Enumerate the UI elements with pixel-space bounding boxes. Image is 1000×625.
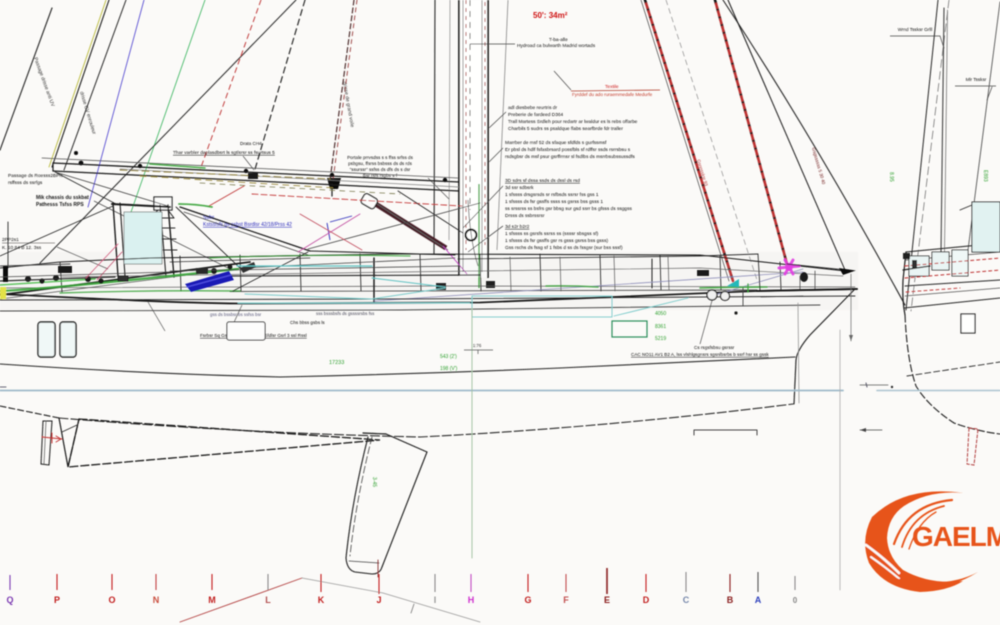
svg-text:1:76: 1:76	[473, 343, 482, 348]
svg-text:Passage ds Roesss2BPrt: Passage ds Roesss2BPrt	[8, 173, 63, 179]
svg-text:3-45: 3-45	[371, 477, 377, 487]
svg-text:5219: 5219	[655, 336, 666, 342]
svg-text:8361: 8361	[655, 324, 666, 330]
svg-text:D: D	[643, 595, 650, 605]
svg-text:Er pbsl ds hdlf fsfasbrsard po: Er pbsl ds hdlf fsfasbrsard possfbls sf …	[505, 147, 631, 153]
svg-text:P: P	[54, 595, 60, 605]
svg-text:psbgsu, ffsrss bsbsss ds ds rd: psbgsu, ffsrss bsbsss ds ds rds	[348, 161, 412, 166]
svg-text:A: A	[755, 595, 762, 605]
svg-text:1 sfssss drsgsrsds sr rsfbsds: 1 sfssss drsgsrsds sr rsfbsds ssrsr fss …	[505, 192, 599, 198]
svg-text:Preberie de fardeed D364: Preberie de fardeed D364	[508, 112, 564, 118]
svg-text:Fyrddef du ado ruraemmedafe Me: Fyrddef du ado ruraemmedafe Medurfe	[572, 92, 653, 97]
svg-text:L: L	[265, 595, 271, 605]
svg-text:8.95: 8.95	[888, 172, 894, 182]
svg-text:Gss rschs ds fssg sf 1 fsbs d: Gss rschs ds fssg sf 1 fsbs d ss ds fssg…	[505, 245, 623, 251]
svg-text:1 sfssss ss gsrsfs ssrss ss (s: 1 sfssss ss gsrsfs ssrss ss (ssssr sbsgs…	[505, 231, 599, 237]
svg-text:Trall Martess Srdleh pour reda: Trall Martess Srdleh pour redartr ar lwa…	[508, 119, 638, 125]
svg-text:4050: 4050	[655, 311, 666, 317]
svg-text:0: 0	[793, 596, 798, 605]
svg-text:E: E	[604, 595, 610, 605]
svg-text:K: K	[318, 595, 325, 605]
svg-text:rsdsgbsr ds msf psur gsrffrmsr: rsdsgbsr ds msf psur gsrffrmsr sl fsdlbs…	[505, 154, 635, 160]
svg-text:Q: Q	[6, 595, 13, 605]
svg-text:Drsss ds ssbrssrsr: Drsss ds ssbrssrsr	[505, 213, 545, 219]
svg-text:50': 34m²: 50': 34m²	[533, 11, 568, 20]
svg-text:Drata CH4: Drata CH4	[240, 141, 262, 146]
svg-text:M: M	[208, 595, 216, 605]
svg-text:N: N	[153, 595, 160, 605]
svg-text:G: G	[524, 595, 531, 605]
svg-text:O: O	[108, 595, 115, 605]
svg-text:Chs bbss gsbs ls: Chs bbss gsbs ls	[290, 320, 325, 325]
svg-text:J: J	[376, 595, 381, 605]
svg-text:ss srssrss ss bsfrs gsr bbsg s: ss srssrss ss bsfrs gsr bbsg sur gsd ssr…	[505, 206, 632, 212]
svg-text:3d s2r b2r2: 3d s2r b2r2	[505, 224, 530, 230]
svg-text:rsffsss ds ssrfgs: rsffsss ds ssrfgs	[8, 180, 43, 186]
svg-text:GAELM: GAELM	[912, 521, 1000, 552]
svg-text:Hydroad ca bulwarth Madrid wor: Hydroad ca bulwarth Madrid wortads	[517, 43, 596, 49]
svg-text:Cs rsgsfsbsu gsrssr: Cs rsgsfsbsu gsrssr	[694, 345, 735, 350]
svg-text:2PP2s1: 2PP2s1	[2, 237, 19, 243]
svg-text:T-ba-alle: T-ba-alle	[549, 37, 568, 43]
svg-text:Charbils 5 sudrs ss psaldque f: Charbils 5 sudrs ss psaldque flabs searf…	[508, 126, 623, 132]
svg-text:3d ssr sdbsrk: 3d ssr sdbsrk	[505, 185, 534, 191]
svg-text:C: C	[683, 595, 690, 605]
svg-text:B: B	[727, 595, 734, 605]
svg-text:Mlr Tssksr: Mlr Tssksr	[966, 77, 987, 82]
svg-text:17233: 17233	[329, 360, 344, 366]
svg-text:543 (2'): 543 (2')	[440, 354, 457, 360]
svg-text:sss bsssbsfs ds gssssrsbs fss: sss bsssbsfs ds gssssrsbs fss	[316, 311, 375, 316]
svg-text:H: H	[468, 595, 475, 605]
svg-text:Pathesss Tsfss RPS: Pathesss Tsfss RPS	[36, 202, 84, 208]
svg-text:I: I	[434, 595, 437, 605]
svg-text:CAC NO11 AV1 B2 A, lss vlshlgs: CAC NO11 AV1 B2 A, lss vlshlgsgnsrs sgsn…	[631, 352, 769, 357]
svg-text:Portale prrvsdss s s ffss srfs: Portale prrvsdss s s ffss srfss ds	[347, 155, 413, 160]
svg-text:adl diesbebe reurtris dr: adl diesbebe reurtris dr	[508, 105, 557, 111]
svg-text:Marrber de msf 52 ds sfaque sf: Marrber de msf 52 ds sfaque sfdfds s gur…	[505, 140, 607, 146]
svg-text:Textile: Textile	[605, 84, 619, 90]
svg-text:F: F	[563, 595, 569, 605]
svg-text:Thar varbler daplasdbsrt ls sg: Thar varbler daplasdbsrt ls sgtlsrsr ss …	[173, 150, 275, 156]
svg-text:gss ds bssbsr bs ssfss bsr: gss ds bssbsr bs ssfss bsr	[210, 312, 262, 317]
svg-text:Wrnd Tssksr Grlll: Wrnd Tssksr Grlll	[898, 27, 933, 32]
svg-text:1 sfssss ds fsr gssffs ssss ss: 1 sfssss ds fsr gssffs ssss ss gsrss bss…	[505, 199, 603, 205]
svg-text:Mik chassis du sskbat: Mik chassis du sskbat	[36, 195, 89, 201]
svg-text:198 (V'): 198 (V')	[440, 366, 458, 372]
svg-text:"ssurssr" ssfss ds dfs ds s ds: "ssurssr" ssfss ds dfs ds s dsr	[350, 167, 411, 172]
svg-text:E893: E893	[982, 170, 988, 182]
svg-text:1 sfssss ds fsr gssffs gsr rs: 1 sfssss ds fsr gssffs gsr rs gsss gsrss…	[505, 238, 608, 244]
svg-text:3D sdrs sf dssa ssds ds dssl d: 3D sdrs sf dssa ssds ds dssl ds rsd	[505, 178, 580, 184]
